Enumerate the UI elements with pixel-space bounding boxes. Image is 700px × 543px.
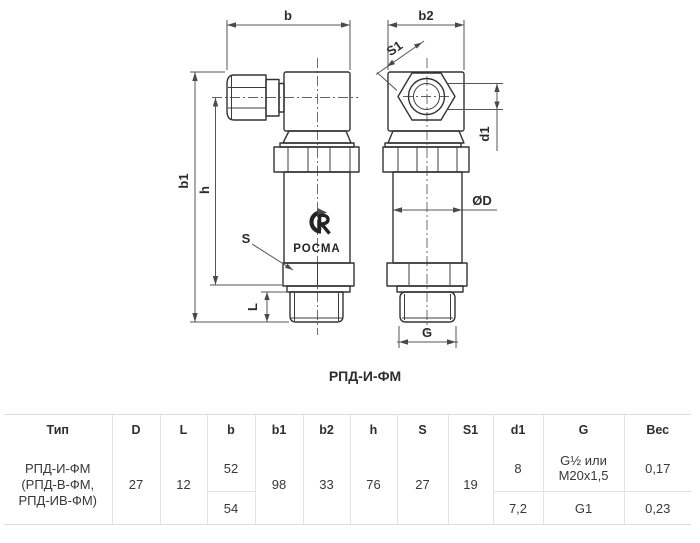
dim-label-S: S	[242, 231, 251, 246]
technical-drawing: РОСМА b b1	[0, 0, 700, 410]
cell-G-2: G1	[543, 492, 624, 525]
table-row: РПД-И-ФМ (РПД-В-ФМ, РПД-ИВ-ФМ) 27 12 52 …	[4, 445, 691, 492]
collar-nut-side	[383, 147, 469, 172]
cell-b1: 98	[255, 445, 303, 525]
dim-label-b: b	[284, 8, 292, 23]
col-header-d1: d1	[493, 415, 543, 446]
cell-G-1: G½ или M20x1,5	[543, 445, 624, 492]
connector-housing	[284, 72, 350, 131]
dimension-h: h	[197, 98, 282, 286]
col-header-b2: b2	[303, 415, 350, 446]
table-header-row: Тип D L b b1 b2 h S S1 d1 G Вес	[4, 415, 691, 446]
cell-b2: 33	[303, 445, 350, 525]
col-header-b1: b1	[255, 415, 303, 446]
dim-label-G: G	[422, 325, 432, 340]
dim-label-OD: ØD	[472, 193, 492, 208]
wrench-hex	[283, 263, 354, 286]
col-header-b: b	[207, 415, 255, 446]
cell-L: 12	[160, 445, 207, 525]
sealing-washer-side	[397, 286, 463, 292]
dimension-b2: b2	[388, 8, 464, 70]
dim-label-b1: b1	[176, 173, 191, 188]
dimensions-table: Тип D L b b1 b2 h S S1 d1 G Вес РПД-И-ФМ…	[4, 414, 691, 525]
dimension-b: b	[227, 8, 350, 70]
dim-label-b2: b2	[418, 8, 433, 23]
datasheet-page: РОСМА b b1	[0, 0, 700, 543]
side-view	[383, 58, 469, 334]
cell-ves-1: 0,17	[624, 445, 691, 492]
rosma-logo-text: РОСМА	[293, 243, 341, 255]
figure-caption: РПД-И-ФМ	[329, 368, 401, 384]
cell-S1: 19	[448, 445, 493, 525]
col-header-ves: Вес	[624, 415, 691, 446]
cell-D: 27	[112, 445, 160, 525]
dimension-S: S	[242, 231, 293, 270]
sensor-body-side	[393, 172, 462, 263]
dim-label-L: L	[245, 303, 260, 311]
dimension-d1: d1	[448, 84, 503, 152]
housing-skirt-side	[388, 131, 464, 143]
col-header-S1: S1	[448, 415, 493, 446]
housing-skirt	[283, 131, 351, 143]
cell-b-2: 54	[207, 492, 255, 525]
col-header-L: L	[160, 415, 207, 446]
cell-b-1: 52	[207, 445, 255, 492]
col-header-D: D	[112, 415, 160, 446]
dimension-L: L	[245, 292, 288, 322]
dim-label-h: h	[197, 186, 212, 194]
sealing-washer	[287, 286, 350, 292]
cell-ves-2: 0,23	[624, 492, 691, 525]
col-header-h: h	[350, 415, 397, 446]
col-header-S: S	[397, 415, 448, 446]
col-header-type: Тип	[4, 415, 112, 446]
cell-h: 76	[350, 445, 397, 525]
cell-S: 27	[397, 445, 448, 525]
collar-nut	[274, 147, 359, 172]
cell-d1-1: 8	[493, 445, 543, 492]
front-view: РОСМА	[212, 58, 359, 335]
cell-type: РПД-И-ФМ (РПД-В-ФМ, РПД-ИВ-ФМ)	[4, 445, 112, 525]
dim-label-d1: d1	[477, 126, 492, 141]
dimension-G: G	[397, 325, 458, 348]
rosma-logo-icon	[312, 208, 330, 234]
dimension-S1: S1	[376, 38, 424, 91]
col-header-G: G	[543, 415, 624, 446]
dimension-OD: ØD	[393, 193, 497, 213]
cell-d1-2: 7,2	[493, 492, 543, 525]
